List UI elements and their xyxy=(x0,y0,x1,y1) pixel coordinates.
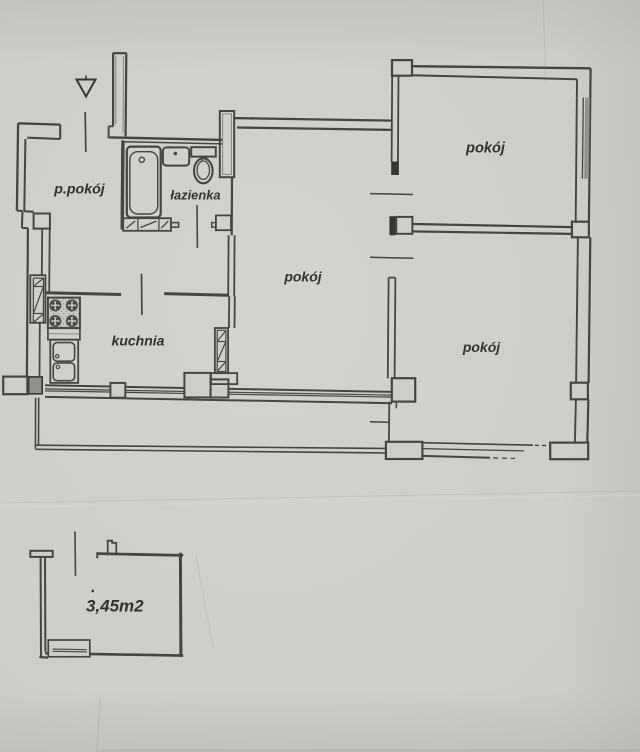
svg-text:kuchnia: kuchnia xyxy=(112,332,165,348)
svg-text:pokój: pokój xyxy=(465,141,506,157)
svg-text:pokój: pokój xyxy=(283,269,322,285)
svg-text:3,45m2: 3,45m2 xyxy=(86,597,144,616)
svg-text:p.pokój: p.pokój xyxy=(53,182,105,198)
svg-text:łazienka: łazienka xyxy=(170,187,220,202)
svg-text:pokój: pokój xyxy=(462,339,501,355)
